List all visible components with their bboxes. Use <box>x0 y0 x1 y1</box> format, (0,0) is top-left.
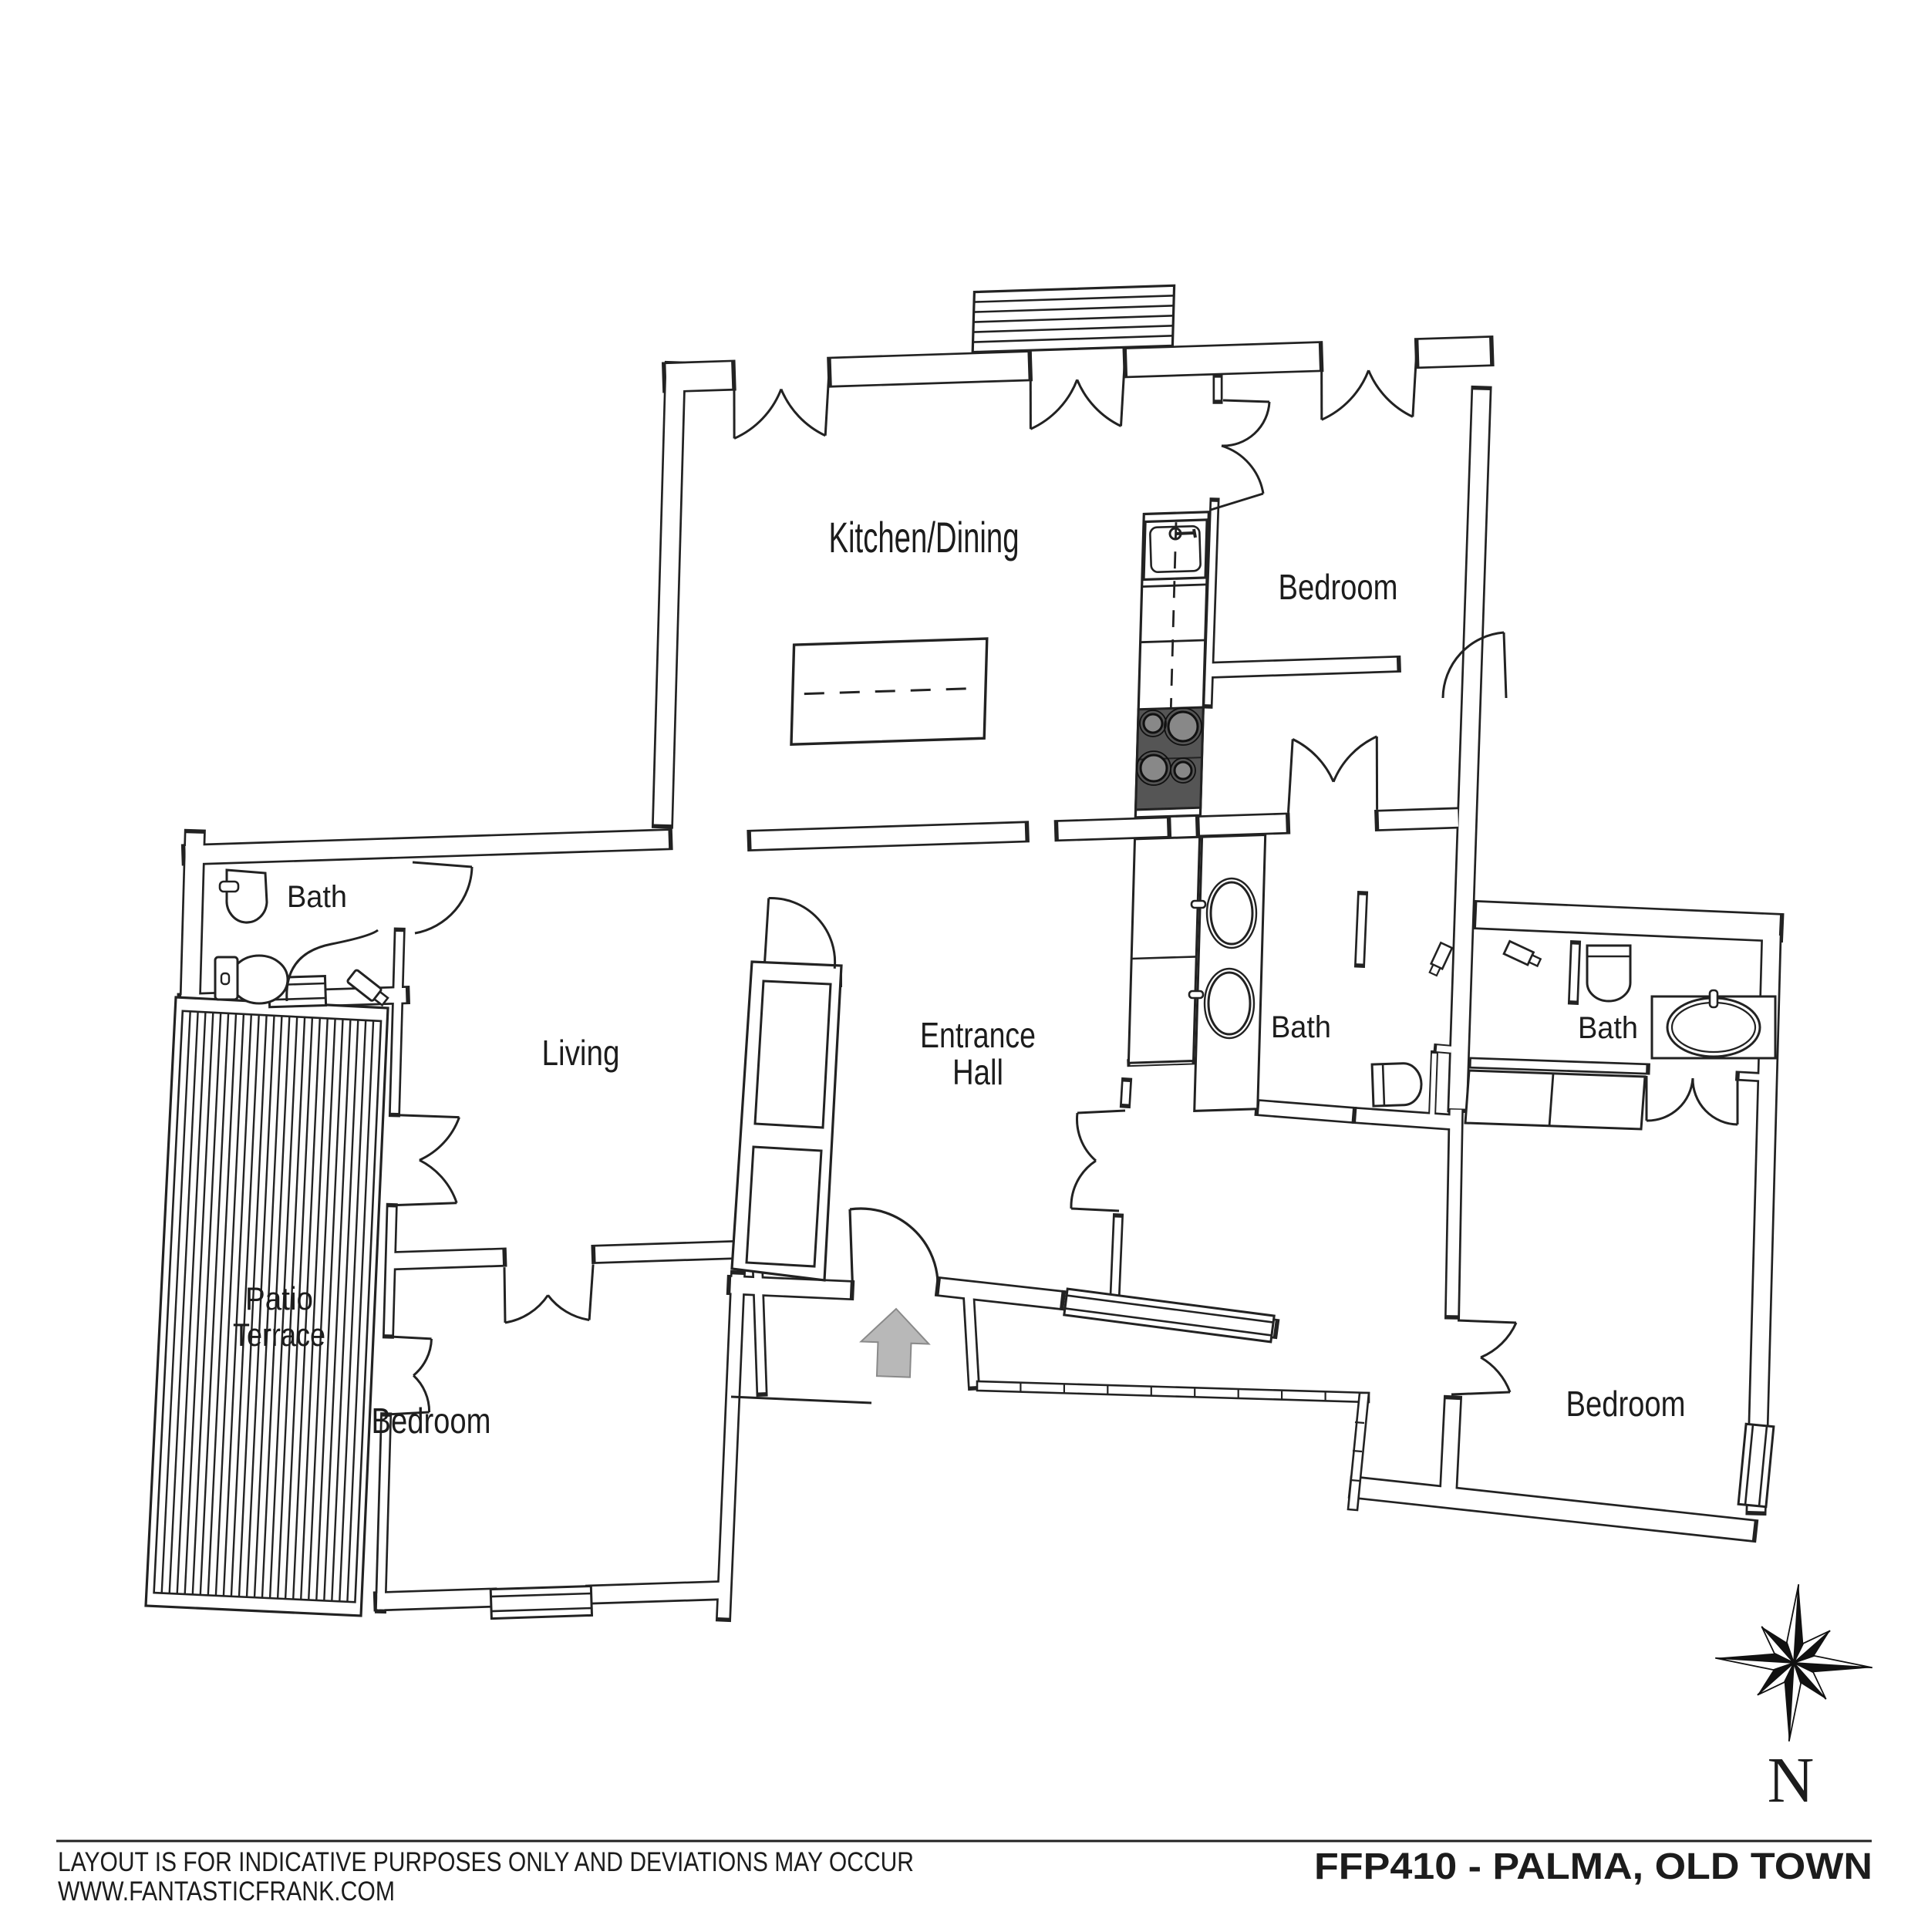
svg-text:Patio: Patio <box>245 1280 313 1317</box>
svg-text:N: N <box>1768 1745 1815 1816</box>
svg-text:Hall: Hall <box>952 1052 1003 1092</box>
svg-text:Bath: Bath <box>1578 1011 1638 1045</box>
svg-text:WWW.FANTASTICFRANK.COM: WWW.FANTASTICFRANK.COM <box>58 1876 395 1907</box>
svg-text:Terrace: Terrace <box>233 1317 325 1353</box>
svg-text:Bath: Bath <box>1271 1010 1331 1044</box>
svg-text:Bath: Bath <box>287 880 347 914</box>
svg-text:Bedroom: Bedroom <box>1566 1384 1686 1424</box>
svg-text:Kitchen/Dining: Kitchen/Dining <box>829 513 1020 561</box>
svg-text:Entrance: Entrance <box>920 1015 1036 1055</box>
svg-text:Bedroom: Bedroom <box>372 1401 491 1441</box>
svg-text:LAYOUT IS FOR INDICATIVE PURPO: LAYOUT IS FOR INDICATIVE PURPOSES ONLY A… <box>58 1847 914 1877</box>
svg-text:FFP410 - PALMA, OLD TOWN: FFP410 - PALMA, OLD TOWN <box>1314 1846 1872 1887</box>
svg-text:Bedroom: Bedroom <box>1279 567 1398 607</box>
svg-text:Living: Living <box>542 1033 620 1073</box>
